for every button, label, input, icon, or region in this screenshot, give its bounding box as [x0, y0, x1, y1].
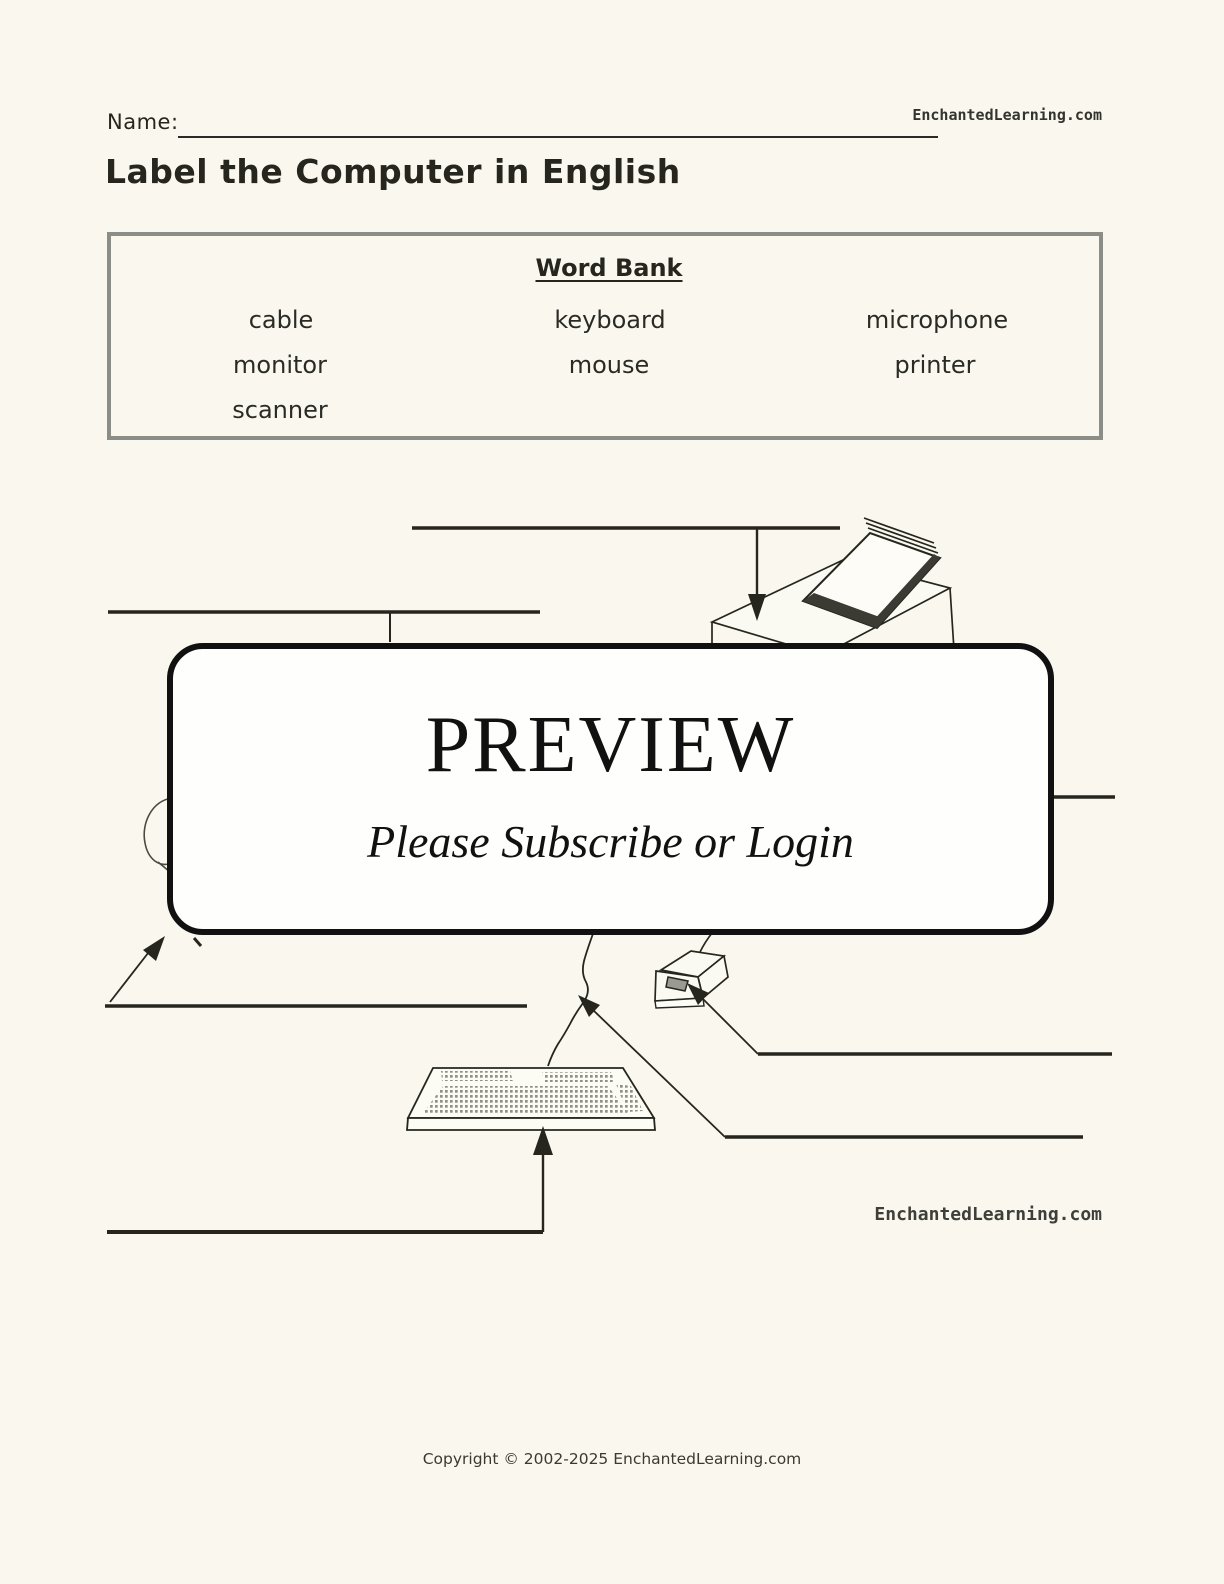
word-bank-box: Word Bank cable keyboard microphone moni… [107, 232, 1103, 440]
word-bank-word-microphone: microphone [866, 306, 1008, 334]
word-bank-word-monitor: monitor [233, 351, 327, 379]
keyboard-illustration [407, 1068, 655, 1130]
answer-line-keyboard [107, 1126, 553, 1232]
cable-illustration [548, 931, 594, 1066]
answer-line-mouse [687, 983, 1112, 1054]
site-name-header: EnchantedLearning.com [912, 106, 1102, 124]
word-bank-word-scanner: scanner [232, 396, 327, 424]
preview-overlay[interactable]: PREVIEW Please Subscribe or Login [167, 643, 1054, 935]
name-blank-line [178, 136, 938, 138]
answer-line-cable [578, 995, 1083, 1137]
preview-heading: PREVIEW [426, 705, 796, 785]
worksheet-page: { "page": { "background": "#faf8ee", "in… [0, 0, 1224, 1584]
word-bank-word-keyboard: keyboard [554, 306, 665, 334]
name-label: Name: [107, 110, 179, 134]
word-bank-word-mouse: mouse [569, 351, 650, 379]
word-bank-heading: Word Bank [535, 254, 682, 282]
mouse-illustration [655, 933, 728, 1008]
copyright-text: Copyright © 2002-2025 EnchantedLearning.… [0, 1450, 1224, 1468]
preview-subscribe-login-text[interactable]: Please Subscribe or Login [367, 819, 854, 865]
word-bank-word-cable: cable [249, 306, 314, 334]
word-bank-word-printer: printer [894, 351, 975, 379]
answer-line-mid-left [105, 936, 527, 1006]
site-name-watermark: EnchantedLearning.com [874, 1204, 1102, 1225]
page-title: Label the Computer in English [105, 152, 681, 191]
answer-line-upper-left [108, 612, 540, 642]
